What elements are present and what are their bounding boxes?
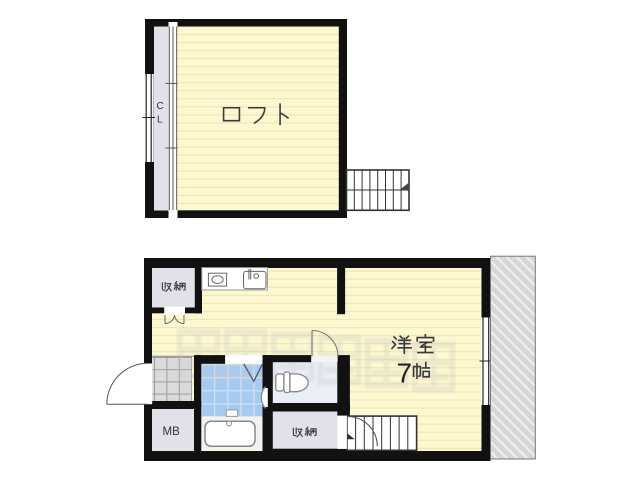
svg-text:7: 7 [397,358,413,389]
svg-text:MB: MB [163,426,181,438]
svg-text:C: C [157,101,164,112]
svg-text:L: L [157,115,163,126]
